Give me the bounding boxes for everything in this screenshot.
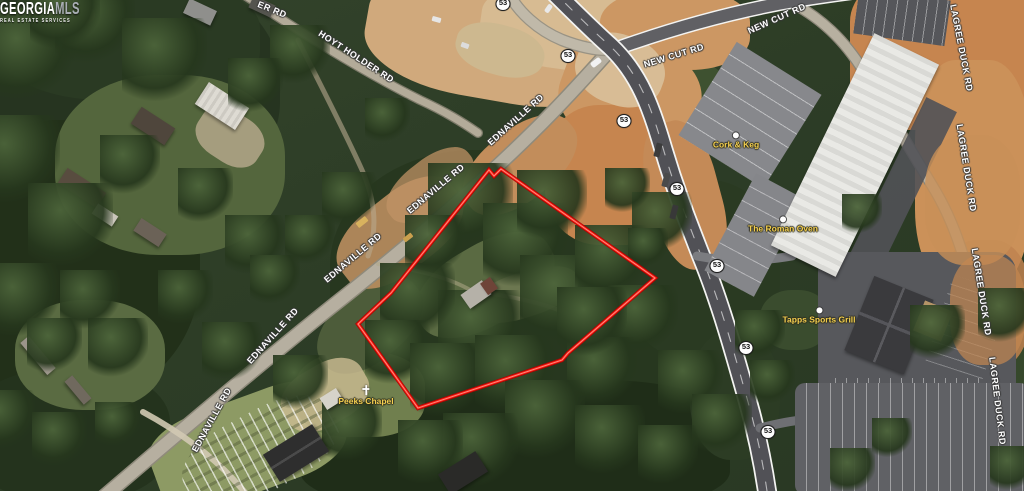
- road-label: EDNAVILLE RD: [191, 386, 234, 453]
- watermark-brand-primary: GEORGIA: [0, 0, 55, 18]
- route-53-shield: 53: [739, 341, 754, 355]
- poi-label[interactable]: Peeks Chapel: [338, 385, 393, 406]
- satellite-map-canvas[interactable]: ER RDHOYT HOLDER RDNEW CUT RDNEW CUT RDE…: [0, 0, 1024, 491]
- route-53-shield: 53: [710, 259, 725, 273]
- road-label: LAGREE DUCK RD: [987, 357, 1007, 446]
- road-label: LAGREE DUCK RD: [955, 124, 978, 213]
- road-label: EDNAVILLE RD: [486, 93, 545, 148]
- road-label: EDNAVILLE RD: [323, 231, 384, 284]
- road-label: LAGREE DUCK RD: [970, 248, 993, 337]
- road-label: HOYT HOLDER RD: [317, 29, 396, 84]
- road-label: NEW CUT RD: [747, 2, 808, 36]
- road-label: EDNAVILLE RD: [406, 162, 467, 215]
- road-label: EDNAVILLE RD: [246, 306, 301, 365]
- route-53-shield: 53: [761, 425, 776, 439]
- route-53-shield: 53: [496, 0, 511, 11]
- georgiamls-watermark: GEORGIAMLS REAL ESTATE SERVICES: [0, 0, 125, 490]
- route-53-shield: 53: [617, 114, 632, 128]
- watermark-tagline: REAL ESTATE SERVICES: [0, 19, 100, 24]
- route-53-shield: 53: [561, 49, 576, 63]
- poi-label[interactable]: Tapps Sports Grill: [782, 307, 855, 324]
- poi-label[interactable]: The Roman Oven: [748, 216, 818, 233]
- restaurant-icon: [733, 132, 739, 138]
- map-labels: ER RDHOYT HOLDER RDNEW CUT RDNEW CUT RDE…: [0, 0, 1024, 491]
- road-label: NEW CUT RD: [643, 43, 705, 70]
- restaurant-icon: [780, 216, 786, 222]
- route-53-shield: 53: [670, 182, 685, 196]
- road-label: ER RD: [256, 0, 288, 20]
- poi-label[interactable]: Cork & Keg: [713, 132, 759, 149]
- church-icon: [363, 385, 370, 395]
- road-label: LAGREE DUCK RD: [948, 4, 974, 93]
- restaurant-icon: [816, 307, 822, 313]
